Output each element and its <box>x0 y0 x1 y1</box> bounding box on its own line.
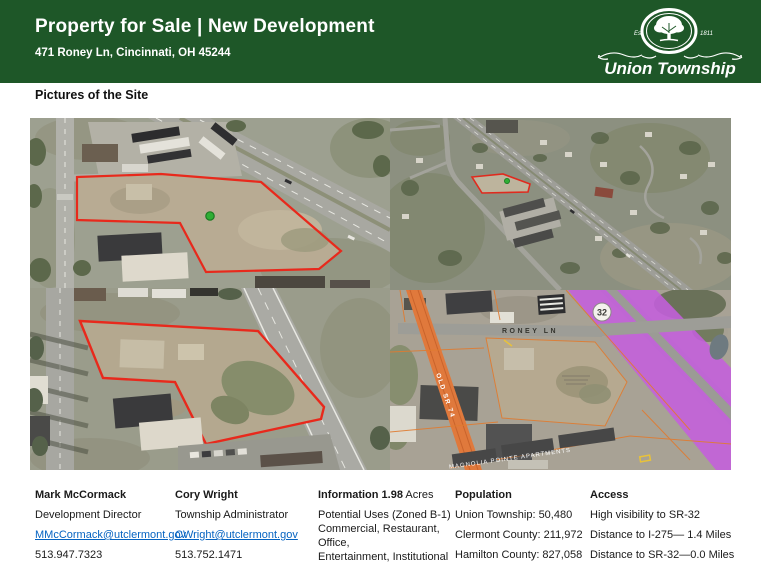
property-address: 471 Roney Ln, Cincinnati, OH 45244 <box>35 47 231 59</box>
access-sr32-distance: Distance to SR-32—0.0 Miles <box>590 545 755 565</box>
union-township-logo: Est. 1811 Union Township <box>590 5 750 80</box>
logo-year-label: 1811 <box>700 31 713 37</box>
information-heading: Information 1.98 Acres <box>318 485 456 505</box>
contact-name: Cory Wright <box>175 485 313 505</box>
tree-oval-emblem: Est. 1811 <box>634 10 713 53</box>
tree-icon <box>654 16 684 41</box>
header-banner: Property for Sale | New Development 471 … <box>0 0 761 83</box>
population-column: Population Union Township: 50,480 Clermo… <box>455 485 590 565</box>
access-heading: Access <box>590 485 755 505</box>
site-marker-dot <box>206 212 214 220</box>
aerial-photo-site-closeup-2 <box>30 288 390 470</box>
site-photo-grid: 32 RONEY LN OLD SR 74 MAGNOLIA POINTE AP… <box>30 118 731 470</box>
population-union-township: Union Township: 50,480 <box>455 505 590 525</box>
site-marker-dot <box>504 178 509 183</box>
route-32-shield: 32 <box>593 303 611 321</box>
population-heading: Population <box>455 485 590 505</box>
contact-phone: 513.947.7323 <box>35 545 170 565</box>
access-column: Access High visibility to SR-32 Distance… <box>590 485 755 565</box>
access-i275-distance: Distance to I-275— 1.4 Miles <box>590 525 755 545</box>
contact-title: Township Administrator <box>175 505 313 525</box>
contact-name: Mark McCormack <box>35 485 170 505</box>
contact-email-link[interactable]: MMcCormack@utclermont.gov <box>35 529 186 541</box>
pictures-section-heading: Pictures of the Site <box>35 88 148 102</box>
gis-parcel-map: 32 RONEY LN OLD SR 74 MAGNOLIA POINTE AP… <box>390 290 731 470</box>
logo-name-text: Union Township <box>604 59 736 78</box>
page-title: Property for Sale | New Development <box>35 16 375 38</box>
information-column: Information 1.98 Acres Potential Uses (Z… <box>318 485 456 564</box>
roney-ln-label: RONEY LN <box>502 328 558 335</box>
contact-email-link[interactable]: CWright@utclermont.gov <box>175 529 298 541</box>
aerial-photo-area-overview <box>390 118 731 290</box>
logo-est-label: Est. <box>634 31 644 37</box>
population-hamilton-county: Hamilton County: 827,058 <box>455 545 590 565</box>
potential-uses-text: Potential Uses (Zoned B-1) Commercial, R… <box>318 508 456 564</box>
contact-mark-mccormack: Mark McCormack Development Director MMcC… <box>35 485 170 565</box>
contact-title: Development Director <box>35 505 170 525</box>
route-32-shield-label: 32 <box>597 308 607 318</box>
access-visibility: High visibility to SR-32 <box>590 505 755 525</box>
aerial-photo-site-closeup-1 <box>30 118 390 288</box>
contact-phone: 513.752.1471 <box>175 545 313 565</box>
contact-cory-wright: Cory Wright Township Administrator CWrig… <box>175 485 313 565</box>
population-clermont-county: Clermont County: 211,972 <box>455 525 590 545</box>
